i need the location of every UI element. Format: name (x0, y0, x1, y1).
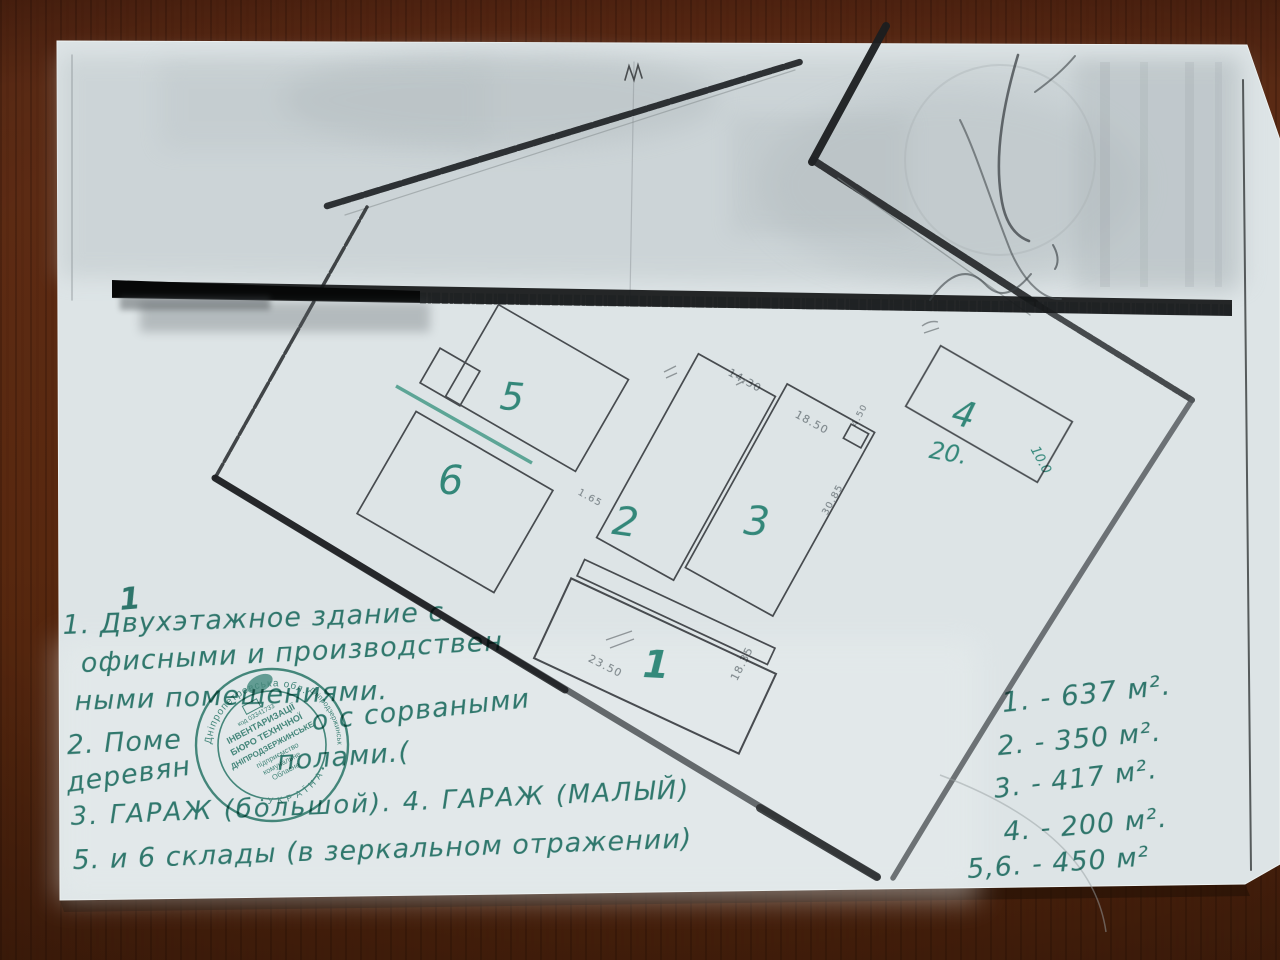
building-1-label: 1 (642, 642, 671, 687)
building-5-label: 5 (498, 374, 526, 420)
round-stamp: Дніпропетровська обл. • У К Р А Ї Н А • … (167, 640, 387, 860)
building-6-label: 6 (438, 458, 463, 504)
svg-text:Дніпродзержинськ: Дніпродзержинськ (305, 681, 352, 749)
building-3-label: 3 (742, 498, 771, 546)
stamp-ring-right-text: Дніпродзержинськ (305, 681, 352, 749)
photo-of-site-plan-document: 1 1. Двухэтажное здание с офисными и про… (0, 0, 1280, 960)
